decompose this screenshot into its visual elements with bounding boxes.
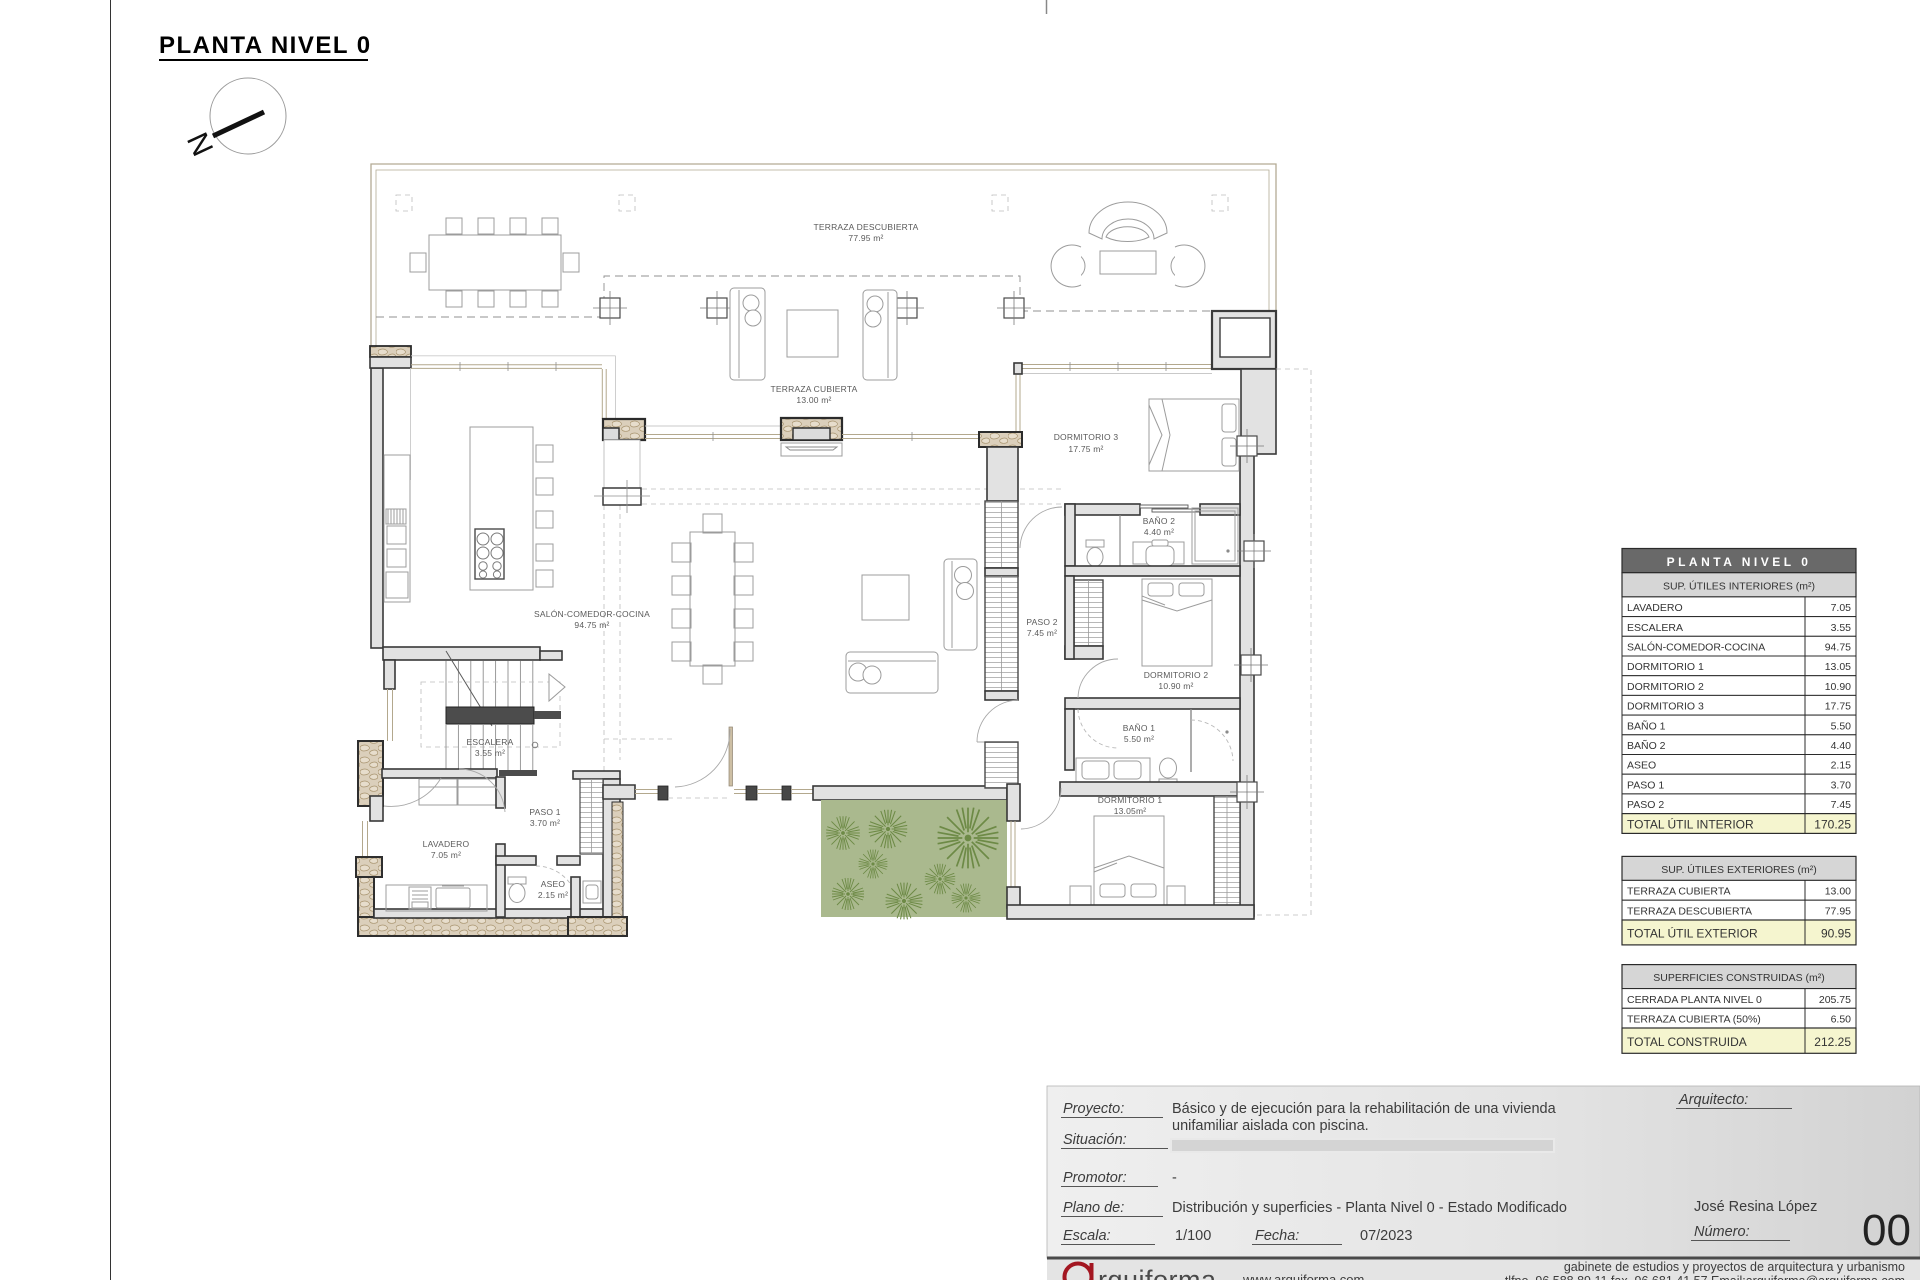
svg-text:ESCALERA: ESCALERA (467, 737, 514, 747)
svg-text:2.15 m²: 2.15 m² (538, 890, 568, 900)
svg-text:PASO 1: PASO 1 (529, 807, 560, 817)
svg-text:rquiforma: rquiforma (1098, 1265, 1217, 1280)
svg-text:BAÑO 1: BAÑO 1 (1123, 723, 1155, 733)
svg-text:SUP. ÚTILES EXTERIORES (m²): SUP. ÚTILES EXTERIORES (m²) (1661, 863, 1817, 876)
svg-text:77.95: 77.95 (1825, 905, 1851, 917)
svg-text:17.75 m²: 17.75 m² (1068, 444, 1103, 454)
svg-text:13.05: 13.05 (1825, 661, 1851, 673)
svg-text:PASO 1: PASO 1 (1627, 779, 1664, 791)
svg-text:Plano de:: Plano de: (1063, 1200, 1124, 1216)
svg-text:BAÑO 2: BAÑO 2 (1627, 739, 1666, 752)
svg-text:unifamiliar aislada con piscin: unifamiliar aislada con piscina. (1172, 1118, 1369, 1134)
svg-text:4.40 m²: 4.40 m² (1144, 527, 1174, 537)
svg-text:77.95 m²: 77.95 m² (848, 233, 883, 243)
svg-text:TERRAZA CUBIERTA (50%): TERRAZA CUBIERTA (50%) (1627, 1014, 1761, 1026)
svg-text:BAÑO 1: BAÑO 1 (1627, 719, 1666, 732)
svg-text:DORMITORIO 3: DORMITORIO 3 (1627, 701, 1704, 713)
svg-text:Fecha:: Fecha: (1255, 1228, 1299, 1244)
svg-text:LAVADERO: LAVADERO (423, 839, 470, 849)
svg-text:5.50 m²: 5.50 m² (1124, 734, 1154, 744)
svg-text:TERRAZA DESCUBIERTA: TERRAZA DESCUBIERTA (813, 222, 918, 232)
svg-text:7.45 m²: 7.45 m² (1027, 628, 1057, 638)
svg-text:TERRAZA CUBIERTA: TERRAZA CUBIERTA (1627, 886, 1730, 898)
svg-text:ESCALERA: ESCALERA (1627, 622, 1683, 634)
svg-text:BAÑO 2: BAÑO 2 (1143, 516, 1175, 526)
svg-text:3.70: 3.70 (1831, 779, 1852, 791)
svg-text:PLANTA NIVEL 0: PLANTA NIVEL 0 (1667, 555, 1812, 569)
svg-text:94.75: 94.75 (1825, 642, 1851, 654)
svg-text:00: 00 (1862, 1206, 1911, 1255)
svg-text:17.75: 17.75 (1825, 701, 1851, 713)
svg-text:1/100: 1/100 (1175, 1228, 1211, 1244)
svg-text:13.00: 13.00 (1825, 886, 1851, 898)
svg-text:90.95: 90.95 (1821, 927, 1851, 941)
svg-text:4.40: 4.40 (1831, 740, 1852, 752)
svg-text:2.15: 2.15 (1831, 760, 1852, 772)
svg-text:ASEO: ASEO (541, 879, 566, 889)
svg-text:TOTAL ÚTIL INTERIOR: TOTAL ÚTIL INTERIOR (1627, 817, 1754, 832)
svg-text:SALÓN-COMEDOR-COCINA: SALÓN-COMEDOR-COCINA (534, 609, 650, 619)
svg-text:3.70 m²: 3.70 m² (530, 818, 560, 828)
svg-text:170.25: 170.25 (1814, 818, 1851, 832)
svg-text:DORMITORIO 1: DORMITORIO 1 (1627, 661, 1704, 673)
svg-text:TOTAL ÚTIL EXTERIOR: TOTAL ÚTIL EXTERIOR (1627, 926, 1758, 941)
svg-text:3.55 m²: 3.55 m² (475, 748, 505, 758)
svg-text:SUP. ÚTILES INTERIORES (m²): SUP. ÚTILES INTERIORES (m²) (1663, 580, 1815, 593)
svg-text:DORMITORIO 2: DORMITORIO 2 (1627, 681, 1704, 693)
svg-text:DORMITORIO 2: DORMITORIO 2 (1144, 670, 1209, 680)
svg-text:Promotor:: Promotor: (1063, 1170, 1127, 1186)
svg-text:07/2023: 07/2023 (1360, 1228, 1412, 1244)
svg-text:Proyecto:: Proyecto: (1063, 1101, 1124, 1117)
svg-text:TOTAL CONSTRUIDA: TOTAL CONSTRUIDA (1627, 1035, 1747, 1049)
svg-text:3.55: 3.55 (1831, 622, 1852, 634)
svg-text:13.00 m²: 13.00 m² (796, 395, 831, 405)
svg-text:PLANTA NIVEL 0: PLANTA NIVEL 0 (159, 32, 372, 59)
svg-text:5.50: 5.50 (1831, 720, 1852, 732)
svg-text:6.50: 6.50 (1831, 1014, 1852, 1026)
svg-text:www.arquiforma.com: www.arquiforma.com (1242, 1272, 1364, 1280)
svg-text:94.75 m²: 94.75 m² (574, 620, 609, 630)
svg-text:CERRADA PLANTA NIVEL 0: CERRADA PLANTA NIVEL 0 (1627, 994, 1762, 1006)
svg-text:SUPERFICIES CONSTRUIDAS (m²): SUPERFICIES CONSTRUIDAS (m²) (1653, 972, 1825, 984)
svg-text:10.90 m²: 10.90 m² (1158, 681, 1193, 691)
svg-text:DORMITORIO 3: DORMITORIO 3 (1054, 432, 1119, 442)
svg-text:gabinete de estudios y proyect: gabinete de estudios y proyectos de arqu… (1564, 1260, 1905, 1274)
svg-text:José Resina López: José Resina López (1694, 1199, 1817, 1215)
svg-text:13.05m²: 13.05m² (1114, 806, 1147, 816)
svg-text:PASO 2: PASO 2 (1627, 799, 1664, 811)
svg-text:Situación:: Situación: (1063, 1132, 1127, 1148)
svg-text:TERRAZA DESCUBIERTA: TERRAZA DESCUBIERTA (1627, 905, 1752, 917)
svg-text:205.75: 205.75 (1819, 994, 1851, 1006)
svg-text:DORMITORIO 1: DORMITORIO 1 (1098, 795, 1163, 805)
svg-text:PASO 2: PASO 2 (1026, 617, 1057, 627)
svg-text:7.05: 7.05 (1831, 602, 1852, 614)
svg-text:Básico y de ejecución para la: Básico y de ejecución para la rehabilita… (1172, 1101, 1557, 1117)
svg-text:LAVADERO: LAVADERO (1627, 602, 1683, 614)
svg-text:SALÓN-COMEDOR-COCINA: SALÓN-COMEDOR-COCINA (1627, 641, 1765, 654)
svg-text:7.05 m²: 7.05 m² (431, 850, 461, 860)
svg-text:Número:: Número: (1694, 1224, 1750, 1240)
svg-text:TERRAZA CUBIERTA: TERRAZA CUBIERTA (771, 384, 858, 394)
svg-text:7.45: 7.45 (1831, 799, 1852, 811)
svg-text:tlfno. 96 588 89 11 fax. 96 6: tlfno. 96 588 89 11 fax. 96 681 41 57 Em… (1505, 1274, 1905, 1280)
svg-text:Escala:: Escala: (1063, 1228, 1111, 1244)
svg-text:Distribución y superficies - P: Distribución y superficies - Planta Nive… (1172, 1200, 1567, 1216)
svg-text:ASEO: ASEO (1627, 760, 1656, 772)
svg-text:10.90: 10.90 (1825, 681, 1851, 693)
svg-text:-: - (1172, 1170, 1177, 1186)
svg-text:212.25: 212.25 (1814, 1035, 1851, 1049)
svg-text:Arquitecto:: Arquitecto: (1678, 1092, 1748, 1108)
